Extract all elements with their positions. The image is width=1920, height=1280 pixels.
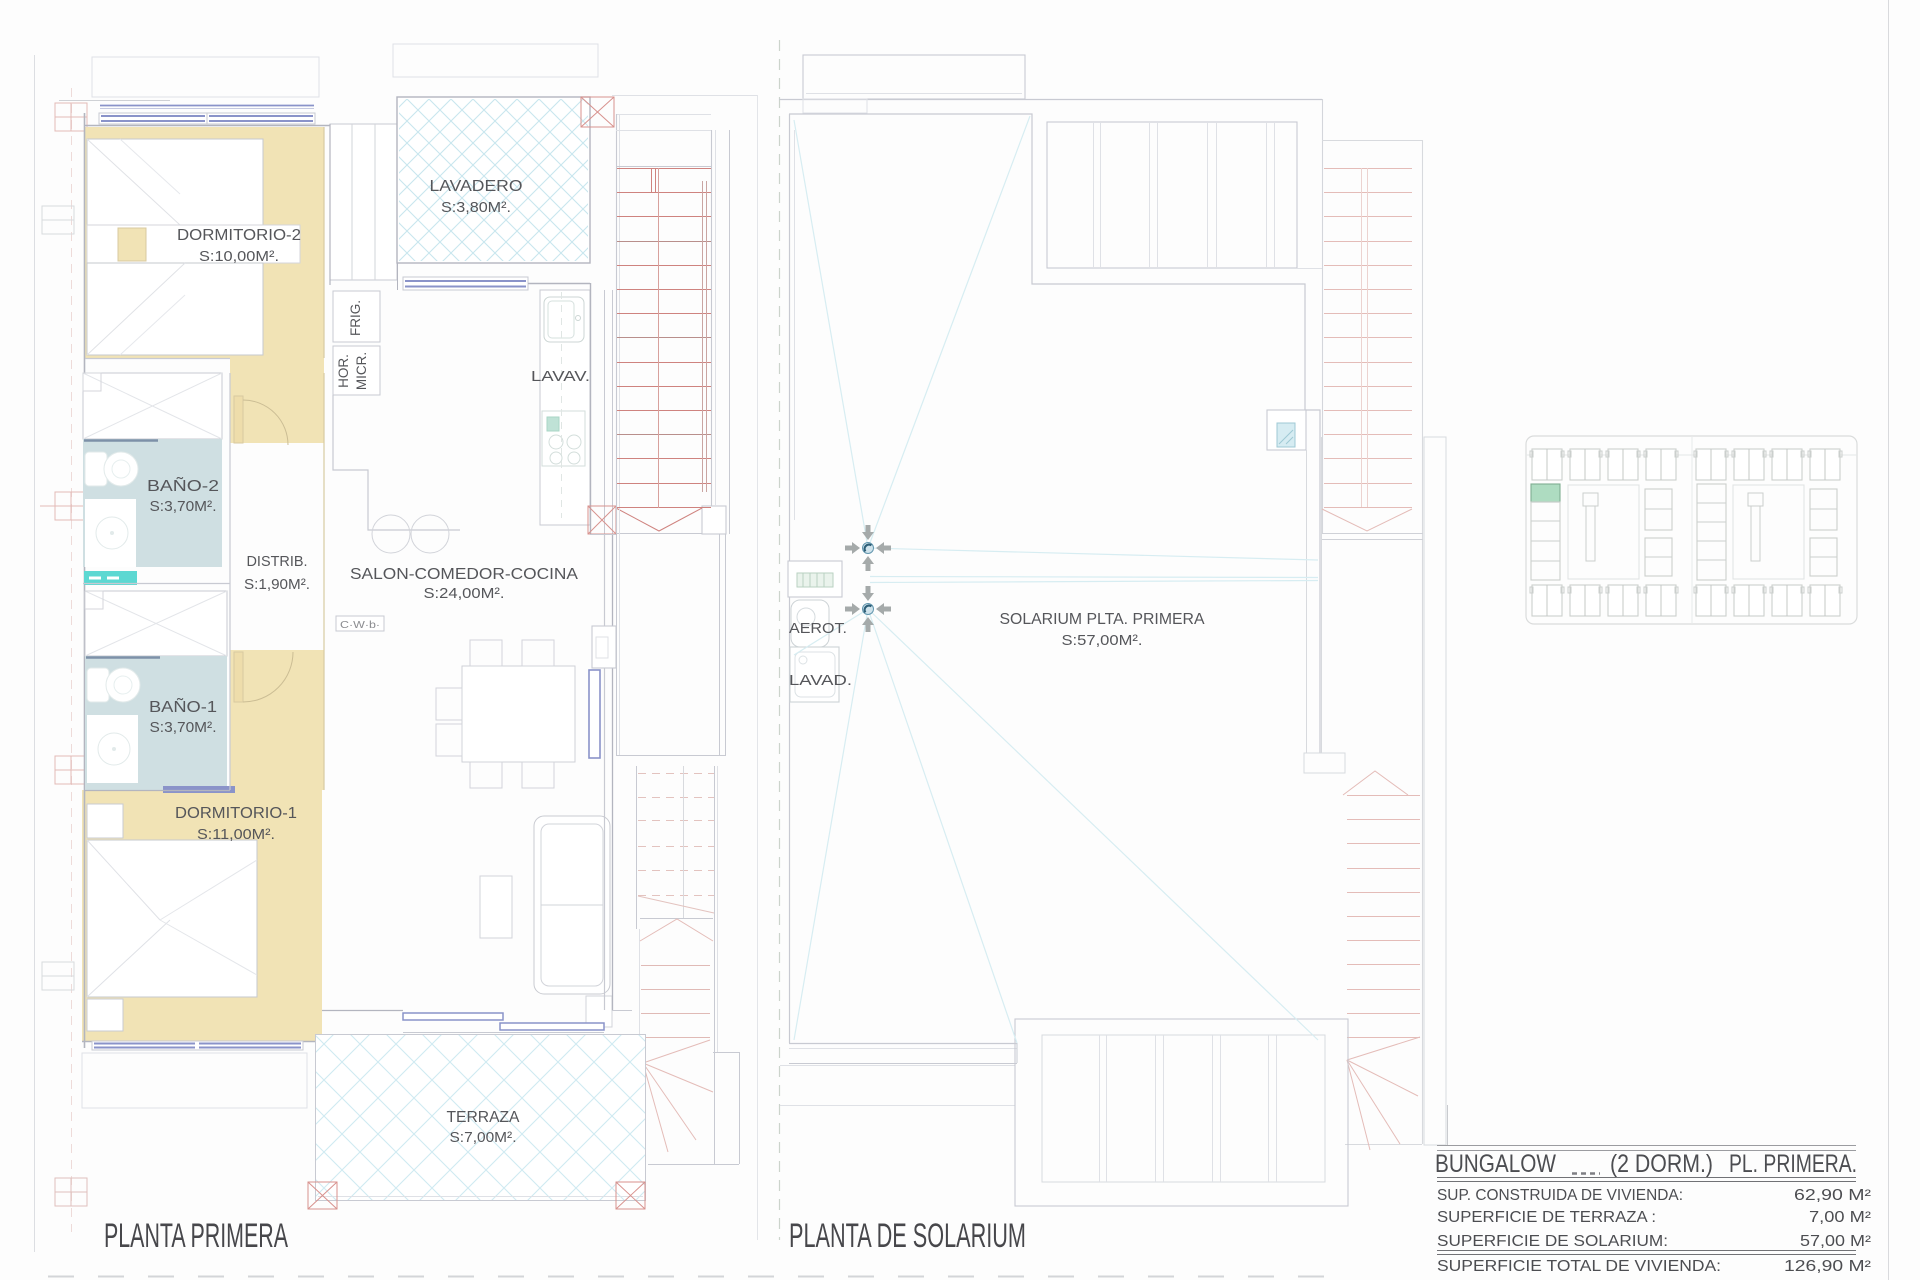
svg-text:FRIG.: FRIG. [348,300,363,336]
svg-text:PLANTA DE SOLARIUM: PLANTA DE SOLARIUM [789,1217,1026,1255]
svg-text:SOLARIUM PLTA. PRIMERA: SOLARIUM PLTA. PRIMERA [1000,611,1206,628]
svg-text:AEROT.: AEROT. [789,620,847,637]
svg-text:S:3,70M².: S:3,70M². [150,498,217,515]
svg-text:S:24,00M².: S:24,00M². [424,585,505,602]
svg-text:S:11,00M².: S:11,00M². [197,826,275,843]
svg-text:S:1,90M².: S:1,90M². [244,576,310,593]
svg-text:LAVADERO: LAVADERO [430,178,523,195]
svg-text:DISTRIB.: DISTRIB. [247,553,308,570]
svg-text:DORMITORIO-1: DORMITORIO-1 [175,805,297,822]
svg-text:S:7,00M².: S:7,00M². [450,1129,517,1146]
svg-text:PLANTA PRIMERA: PLANTA PRIMERA [104,1217,288,1255]
svg-text:TERRAZA: TERRAZA [447,1109,521,1126]
svg-text:62,90 M²: 62,90 M² [1794,1187,1871,1204]
svg-text:(2 DORM.): (2 DORM.) [1610,1150,1713,1178]
svg-text:S:3,70M².: S:3,70M². [150,719,217,736]
svg-text:LAVAV.: LAVAV. [531,368,590,385]
svg-text:MICR.: MICR. [354,352,369,390]
svg-text:BUNGALOW: BUNGALOW [1435,1150,1556,1178]
svg-text:SUP. CONSTRUIDA DE VIVIENDA:: SUP. CONSTRUIDA DE VIVIENDA: [1437,1187,1683,1204]
svg-text:SUPERFICIE DE SOLARIUM:: SUPERFICIE DE SOLARIUM: [1437,1233,1668,1250]
svg-text:S:3,80M².: S:3,80M². [441,199,511,216]
svg-text:BAÑO-2: BAÑO-2 [147,478,219,495]
svg-text:S:57,00M².: S:57,00M². [1062,632,1143,649]
svg-text:7,00 M²: 7,00 M² [1809,1209,1871,1226]
svg-text:57,00 M²: 57,00 M² [1800,1233,1871,1250]
svg-text:126,90 M²: 126,90 M² [1784,1258,1871,1275]
svg-text:LAVAD.: LAVAD. [789,672,852,689]
svg-text:DORMITORIO-2: DORMITORIO-2 [177,227,301,244]
svg-text:SUPERFICIE DE TERRAZA :: SUPERFICIE DE TERRAZA : [1437,1209,1656,1226]
svg-text:PL. PRIMERA.: PL. PRIMERA. [1729,1150,1857,1178]
svg-text:BAÑO-1: BAÑO-1 [149,699,217,716]
svg-text:C·W·b·: C·W·b· [340,620,380,631]
svg-text:SALON-COMEDOR-COCINA: SALON-COMEDOR-COCINA [350,566,579,583]
svg-text:HOR.: HOR. [336,354,351,388]
svg-text:S:10,00M².: S:10,00M². [199,248,279,265]
svg-text:SUPERFICIE TOTAL DE VIVIENDA:: SUPERFICIE TOTAL DE VIVIENDA: [1437,1258,1721,1275]
